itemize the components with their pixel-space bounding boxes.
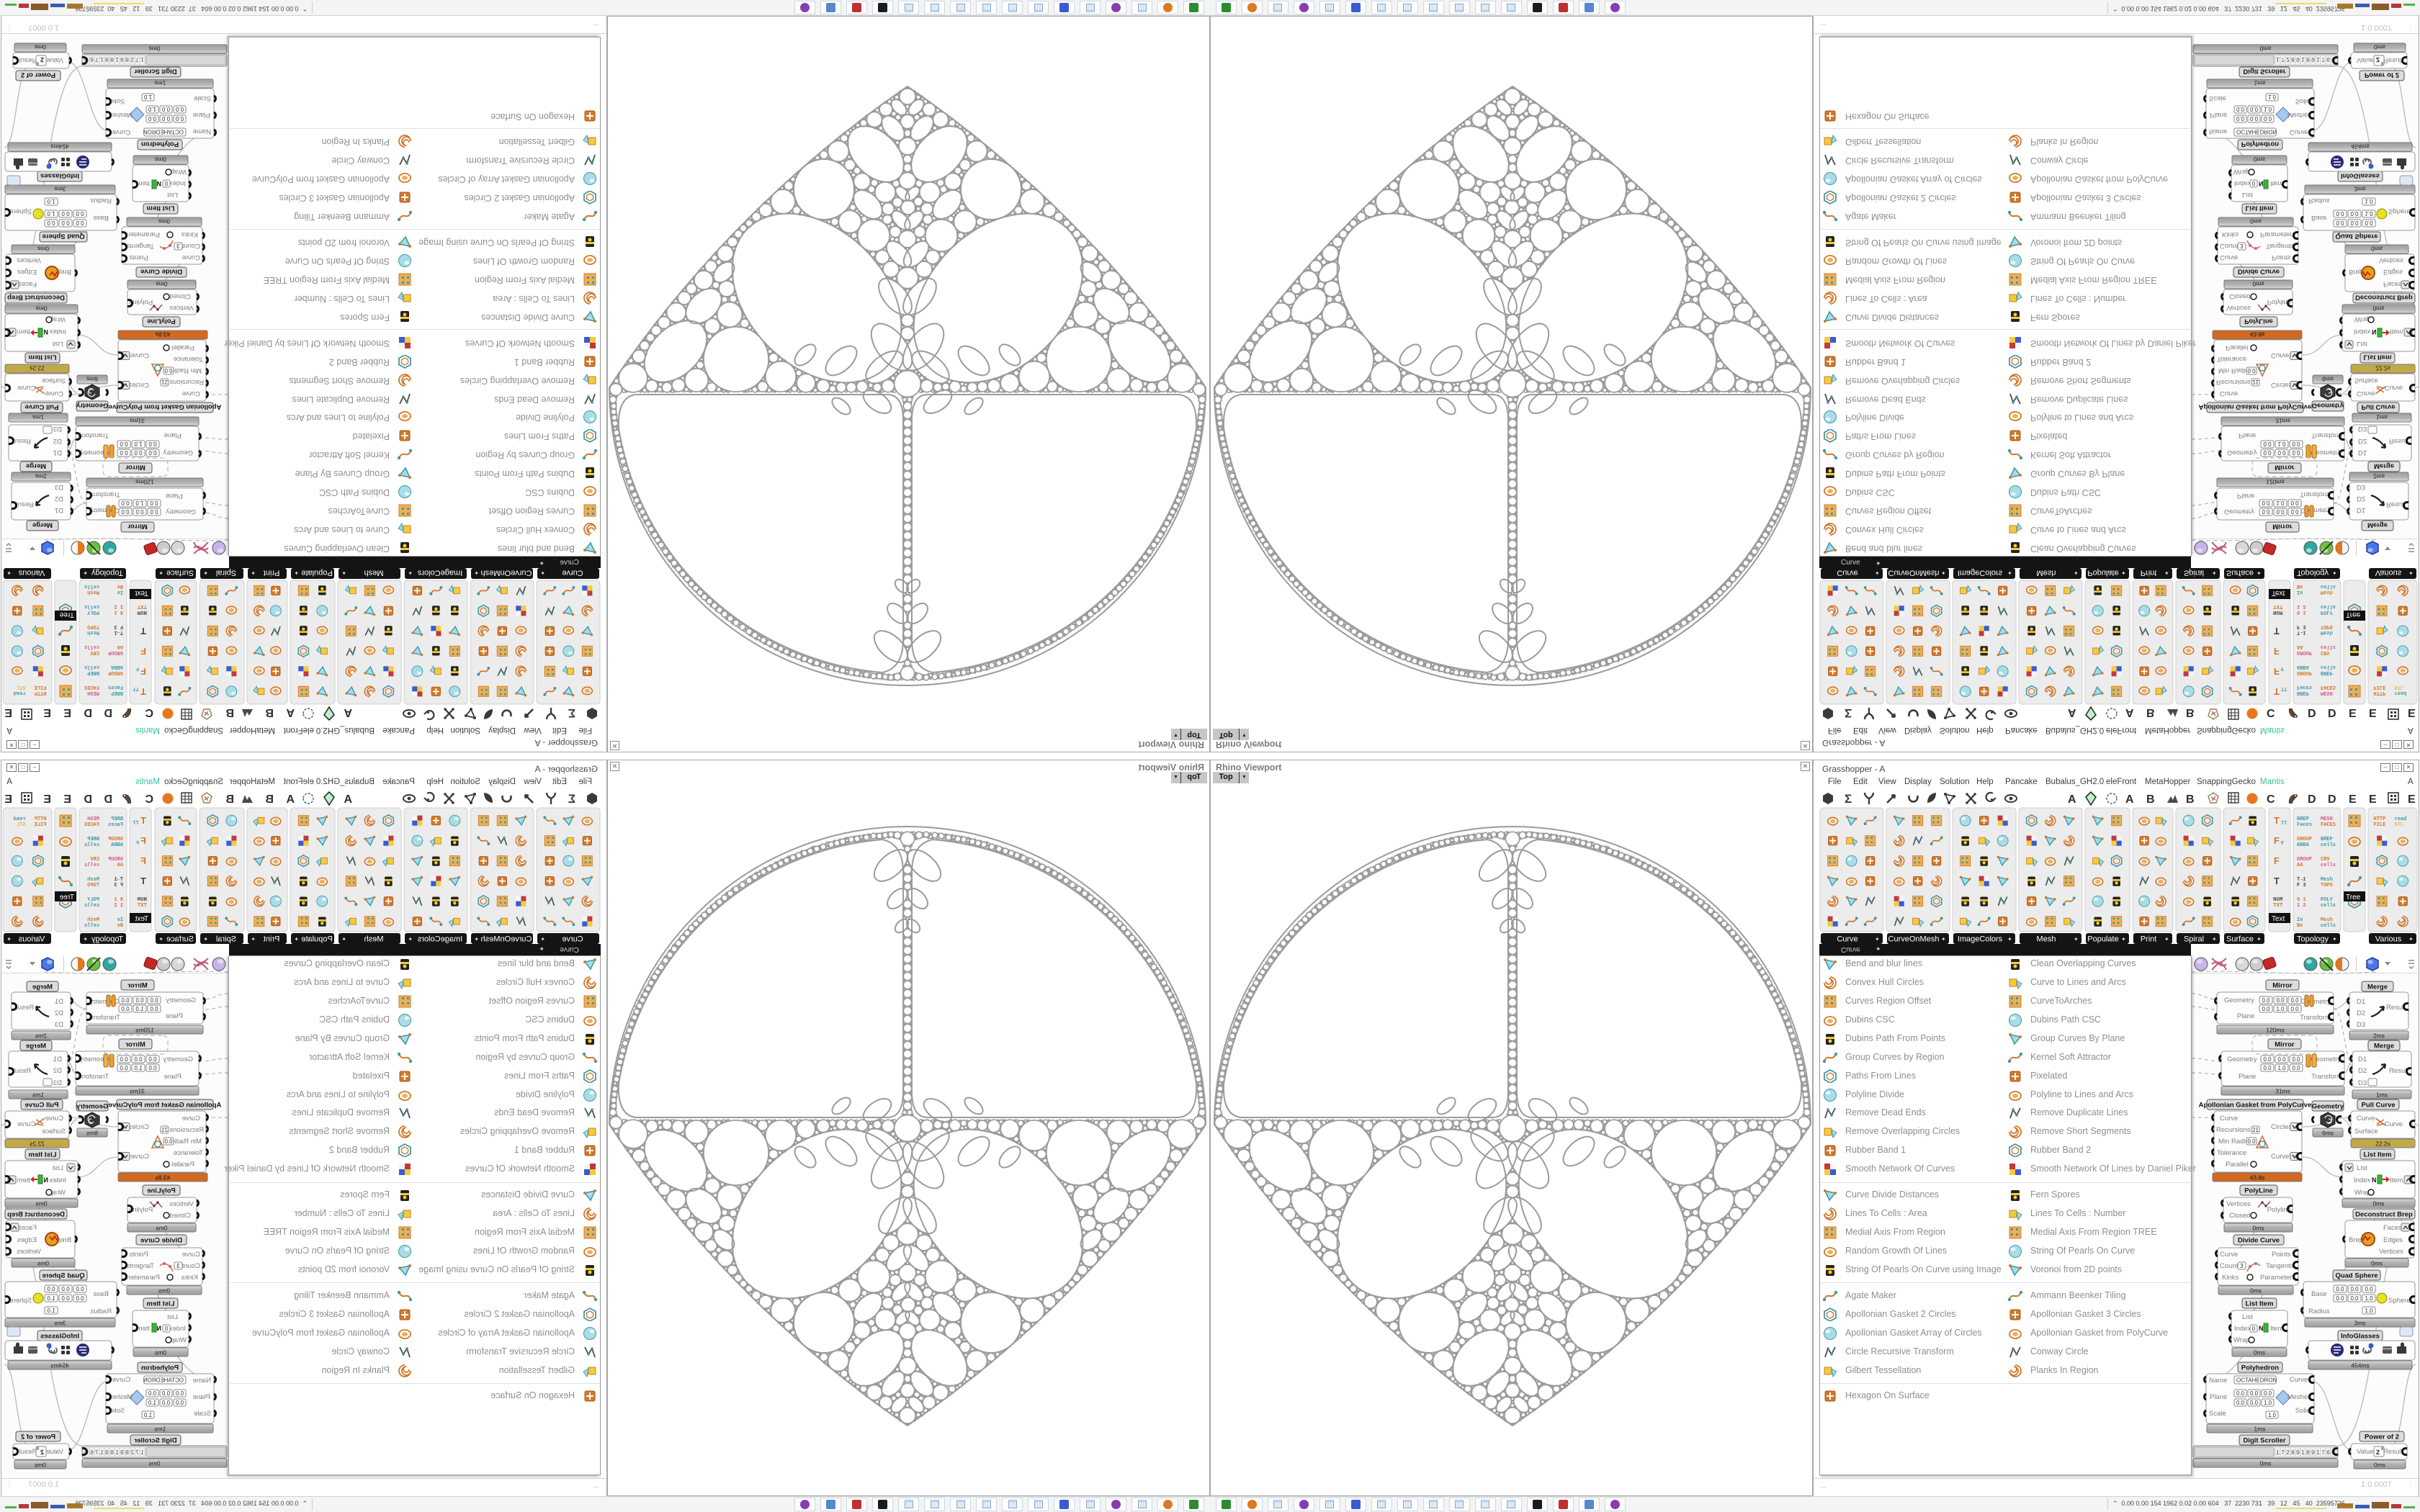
- svg-text:Sphere: Sphere: [2388, 1297, 2411, 1305]
- svg-text:Pull Curve: Pull Curve: [2362, 1102, 2396, 1110]
- svg-text:ABBA: ABBA: [2297, 842, 2310, 848]
- svg-text:✦: ✦: [2257, 936, 2262, 942]
- svg-text:FACES: FACES: [2321, 822, 2336, 828]
- svg-text:✦: ✦: [2121, 936, 2126, 942]
- svg-text:6ms: 6ms: [2322, 1130, 2334, 1137]
- svg-text:Points: Points: [2272, 1251, 2291, 1259]
- svg-text:✦: ✦: [341, 936, 346, 942]
- svg-text:0ms: 0ms: [2252, 1225, 2264, 1232]
- svg-text:1: 1: [2316, 1449, 2320, 1456]
- svg-text:Curves: Curves: [2271, 1153, 2293, 1161]
- svg-text:Surface: Surface: [2226, 935, 2254, 944]
- svg-text:0.0: 0.0: [2250, 1390, 2259, 1397]
- svg-text:454ms: 454ms: [2351, 1362, 2370, 1369]
- svg-text:0ms: 0ms: [2254, 1349, 2265, 1356]
- svg-text:E: E: [2349, 793, 2357, 806]
- svg-text:✦: ✦: [474, 936, 479, 942]
- svg-text:List: List: [2357, 1164, 2367, 1172]
- svg-text:0ms: 0ms: [2374, 1462, 2385, 1469]
- svg-text:Curve: Curve: [2357, 1115, 2375, 1122]
- svg-text:List Item: List Item: [2363, 1151, 2391, 1159]
- svg-text:F 3: F 3: [2297, 883, 2306, 888]
- svg-text:0: 0: [2252, 1326, 2256, 1332]
- svg-text:1: 1: [2301, 1449, 2305, 1456]
- svg-text:Mirror: Mirror: [2272, 982, 2293, 990]
- svg-text:Tolerance: Tolerance: [2217, 1149, 2246, 1157]
- svg-text:0.0: 0.0: [2336, 1295, 2344, 1302]
- svg-text:Polyhedron: Polyhedron: [2241, 1364, 2279, 1372]
- svg-text:0.0: 0.0: [2247, 1138, 2256, 1145]
- svg-text:✦: ✦: [2212, 936, 2217, 942]
- svg-text:Curves: Curves: [2290, 1376, 2311, 1384]
- svg-text:A: A: [344, 793, 352, 806]
- svg-text:Result: Result: [2383, 1448, 2403, 1456]
- svg-text:✦: ✦: [540, 936, 545, 942]
- svg-text:A: A: [2125, 793, 2134, 806]
- svg-text:A: A: [286, 793, 295, 806]
- svg-text:Curve: Curve: [2220, 1251, 2238, 1259]
- svg-text:CRV: CRV: [2321, 857, 2330, 863]
- svg-text:Topology: Topology: [2297, 935, 2329, 944]
- svg-text:Transform: Transform: [2311, 1073, 2342, 1081]
- svg-text:Solid: Solid: [2295, 1407, 2311, 1415]
- svg-text:0.0: 0.0: [2276, 997, 2285, 1004]
- svg-text:C: C: [145, 793, 153, 806]
- svg-text:C: C: [2267, 793, 2275, 806]
- svg-text:D: D: [2308, 793, 2316, 806]
- svg-text:B: B: [2186, 793, 2195, 806]
- svg-text:Name: Name: [2209, 1377, 2227, 1385]
- svg-text:N: N: [2259, 1325, 2264, 1332]
- svg-text:Meshes: Meshes: [2287, 1393, 2312, 1401]
- svg-text:Brep: Brep: [2349, 1236, 2363, 1244]
- svg-text:Divide Curve: Divide Curve: [2238, 1237, 2280, 1245]
- svg-text:Vertices: Vertices: [2226, 1200, 2251, 1208]
- svg-text:Σ: Σ: [1845, 792, 1852, 806]
- svg-text:1ms: 1ms: [2376, 1092, 2388, 1099]
- svg-text:22.2s: 22.2s: [2375, 1140, 2390, 1148]
- svg-text:0.0: 0.0: [2350, 1295, 2359, 1302]
- svg-text:0.0: 0.0: [2262, 1006, 2270, 1012]
- svg-text:NUM: NUM: [2273, 897, 2283, 903]
- svg-text:Parallel: Parallel: [2226, 1161, 2249, 1169]
- svg-text:D: D: [2328, 793, 2336, 806]
- svg-text:Curve: Curve: [2385, 1120, 2403, 1128]
- svg-text:120ms: 120ms: [2266, 1027, 2285, 1034]
- svg-text:B: B: [225, 793, 234, 806]
- svg-text:✦: ✦: [2007, 936, 2012, 942]
- svg-text:1.0: 1.0: [2365, 1295, 2373, 1302]
- svg-text:6: 6: [2326, 1449, 2330, 1456]
- svg-text:E: E: [2408, 793, 2416, 806]
- svg-text:✦: ✦: [408, 936, 413, 942]
- svg-text:GROUP: GROUP: [2297, 837, 2312, 842]
- svg-text:Count: Count: [2220, 1262, 2238, 1270]
- svg-text:Mesh: Mesh: [2037, 935, 2056, 944]
- svg-text:8: 8: [2291, 1449, 2295, 1456]
- svg-text:0.0: 0.0: [2290, 1006, 2299, 1012]
- svg-text:Vertices: Vertices: [2379, 1248, 2403, 1256]
- svg-text:cells: cells: [2321, 923, 2336, 929]
- svg-text:Closed: Closed: [2229, 1212, 2251, 1220]
- svg-text:43.8s: 43.8s: [2250, 1174, 2265, 1182]
- svg-text:F: F: [2274, 855, 2280, 866]
- svg-text:T: T: [2274, 876, 2280, 886]
- svg-text:Base: Base: [2311, 1290, 2327, 1298]
- svg-text:0ms: 0ms: [2259, 1460, 2271, 1467]
- svg-text:E: E: [2369, 793, 2377, 806]
- svg-text:BREP: BREP: [2321, 837, 2333, 842]
- svg-text:Tangents: Tangents: [2266, 1262, 2294, 1270]
- svg-text:31ms: 31ms: [2275, 1088, 2290, 1095]
- svg-text:B: B: [265, 793, 274, 806]
- svg-text:Transform: Transform: [2300, 1014, 2331, 1022]
- svg-text:0.0: 0.0: [2336, 1286, 2344, 1292]
- svg-text:Populate: Populate: [2087, 935, 2118, 944]
- svg-text:3: 3: [2240, 1263, 2244, 1269]
- svg-text:T→1: T→1: [2297, 877, 2306, 883]
- svg-text:0ms: 0ms: [2250, 1287, 2262, 1295]
- svg-text:✦: ✦: [2332, 936, 2337, 942]
- svg-text:D1: D1: [2357, 998, 2365, 1006]
- svg-text:0.0: 0.0: [2236, 1400, 2245, 1406]
- svg-text:Mesh: Mesh: [2321, 877, 2333, 883]
- svg-text:E: E: [43, 793, 51, 806]
- svg-text:Edges: Edges: [2383, 1236, 2403, 1244]
- svg-text:1.0: 1.0: [2276, 1006, 2285, 1012]
- svg-text:1 2: 1 2: [2297, 903, 2306, 909]
- svg-text:8: 8: [2306, 1449, 2310, 1456]
- svg-text:0.0: 0.0: [2263, 1065, 2272, 1071]
- svg-text:Various: Various: [2375, 935, 2402, 944]
- svg-text:Text: Text: [2272, 915, 2285, 923]
- svg-text:AA: AA: [2297, 863, 2303, 868]
- svg-text:0.0: 0.0: [2250, 1400, 2259, 1406]
- svg-text:2: 2: [2286, 1449, 2290, 1456]
- svg-text:7: 7: [2321, 1449, 2325, 1456]
- svg-text:HTTP: HTTP: [2374, 816, 2386, 822]
- svg-text:77: 77: [2281, 821, 2287, 827]
- svg-text:Index: Index: [2354, 1176, 2370, 1184]
- svg-text:TOPO: TOPO: [2321, 883, 2333, 888]
- svg-text:GROUP: GROUP: [2297, 857, 2312, 863]
- svg-text:Mesh: Mesh: [364, 935, 384, 944]
- svg-text:Spiral: Spiral: [2184, 935, 2204, 944]
- svg-text:Geometry: Geometry: [2312, 1103, 2344, 1111]
- svg-text:Scale: Scale: [2209, 1410, 2226, 1418]
- svg-text:A: A: [2068, 793, 2076, 806]
- svg-text:0 1: 0 1: [2297, 897, 2306, 903]
- svg-text:CurveOnMesh: CurveOnMesh: [481, 935, 532, 944]
- svg-text:3ms: 3ms: [2354, 1320, 2365, 1327]
- svg-text:read: read: [2395, 816, 2407, 822]
- svg-text:POLY: POLY: [2321, 897, 2334, 903]
- svg-text:Geometry: Geometry: [2227, 1056, 2257, 1063]
- svg-text:T: T: [2274, 815, 2280, 826]
- svg-text:OCTAHEDRON: OCTAHEDRON: [2236, 1377, 2277, 1384]
- svg-text:7: 7: [2281, 1449, 2285, 1456]
- svg-text:9: 9: [2311, 1449, 2315, 1456]
- svg-text:0.0: 0.0: [2264, 1390, 2272, 1397]
- svg-text:Value: Value: [2357, 1448, 2374, 1456]
- svg-text:21: 21: [2252, 1127, 2259, 1133]
- svg-text:cells: cells: [2321, 863, 2336, 868]
- svg-text:Circles: Circles: [2271, 1123, 2292, 1131]
- svg-text:2: 2: [2376, 1449, 2380, 1456]
- svg-text:B: B: [2146, 793, 2155, 806]
- svg-text:0.0: 0.0: [2292, 1056, 2300, 1063]
- svg-text:Recursions: Recursions: [2216, 1126, 2251, 1134]
- svg-text:✦: ✦: [1941, 936, 1946, 942]
- svg-text:1.0: 1.0: [2268, 1412, 2277, 1418]
- svg-text:N: N: [2372, 1176, 2377, 1184]
- svg-text:FILE: FILE: [2374, 822, 2386, 828]
- svg-text:Curve: Curve: [2220, 1115, 2238, 1122]
- svg-text:Faces: Faces: [2383, 1224, 2402, 1232]
- svg-text:Plane: Plane: [2237, 1012, 2254, 1020]
- svg-text:Quad Sphere: Quad Sphere: [2335, 1272, 2378, 1280]
- svg-text:✦: ✦: [2164, 936, 2169, 942]
- svg-text:Merge: Merge: [2374, 1043, 2394, 1050]
- svg-text:InfoGlasses: InfoGlasses: [2341, 1333, 2380, 1341]
- svg-text:1: 1: [2276, 1449, 2280, 1456]
- svg-text:Σ: Σ: [568, 792, 575, 806]
- svg-text:Item: Item: [2390, 1176, 2403, 1184]
- svg-text:0.0: 0.0: [2262, 997, 2270, 1004]
- svg-text:Faces: Faces: [2297, 822, 2312, 828]
- svg-text:Be: Be: [2297, 923, 2303, 929]
- svg-text:0.0: 0.0: [2365, 1286, 2373, 1292]
- svg-text:CurveOnMesh: CurveOnMesh: [1888, 935, 1940, 944]
- svg-text:Ie: Ie: [2297, 917, 2303, 923]
- svg-text:1.0: 1.0: [2277, 1065, 2286, 1071]
- svg-text:Deconstruct Brep: Deconstruct Brep: [2355, 1211, 2413, 1219]
- svg-text:1.0: 1.0: [2365, 1308, 2373, 1314]
- svg-text:✦: ✦: [2408, 936, 2414, 942]
- svg-text:D2: D2: [2358, 1067, 2367, 1075]
- svg-text:F: F: [2274, 835, 2280, 846]
- svg-text:D3: D3: [2357, 1021, 2365, 1029]
- svg-text:List Item: List Item: [2245, 1300, 2273, 1308]
- svg-text:BREP: BREP: [2297, 816, 2309, 822]
- svg-text:Surface: Surface: [2354, 1128, 2378, 1135]
- svg-text:D1: D1: [2358, 1056, 2367, 1063]
- svg-text:9: 9: [2296, 1449, 2300, 1456]
- svg-text:2ms: 2ms: [2373, 1032, 2385, 1040]
- svg-text:Index: Index: [2234, 1325, 2251, 1333]
- svg-text:0ms: 0ms: [2372, 1200, 2384, 1207]
- svg-text:0.0: 0.0: [2277, 1056, 2286, 1063]
- svg-text:Print: Print: [2141, 935, 2157, 944]
- svg-text:Power of 2: Power of 2: [2365, 1434, 2399, 1441]
- svg-text:Plane: Plane: [2238, 1073, 2256, 1081]
- svg-text:ImageColors: ImageColors: [1958, 935, 2003, 944]
- svg-text:E: E: [63, 793, 71, 806]
- svg-text:Tree: Tree: [2346, 894, 2361, 901]
- svg-text:Mesh: Mesh: [2321, 917, 2333, 923]
- svg-text:List: List: [2242, 1313, 2253, 1321]
- svg-text:1.0: 1.0: [2264, 1400, 2272, 1406]
- svg-text:cells: cells: [2321, 903, 2336, 909]
- svg-text:Wrap: Wrap: [2233, 1336, 2250, 1344]
- svg-text:0.0: 0.0: [2292, 1065, 2300, 1071]
- svg-text:Plane: Plane: [2210, 1393, 2227, 1401]
- svg-text:Item: Item: [2270, 1325, 2284, 1333]
- svg-text:0ms: 0ms: [2371, 1260, 2383, 1267]
- svg-text:Curve: Curve: [562, 935, 583, 944]
- svg-text:ImageColors: ImageColors: [417, 935, 462, 944]
- svg-text:Digit Scroller: Digit Scroller: [2243, 1437, 2285, 1445]
- svg-text:0.0: 0.0: [2236, 1390, 2245, 1397]
- svg-text:0.0: 0.0: [2263, 1056, 2272, 1063]
- svg-text:1ms: 1ms: [2254, 1426, 2265, 1433]
- svg-text:✦: ✦: [1875, 936, 1880, 942]
- svg-text:STL: STL: [2395, 822, 2404, 828]
- svg-text:Apollonian Gasket from PolyCur: Apollonian Gasket from PolyCurve: [2199, 1102, 2312, 1110]
- svg-text:D3: D3: [2358, 1079, 2367, 1087]
- svg-text:F: F: [2281, 841, 2284, 847]
- svg-text:D: D: [104, 793, 112, 806]
- svg-text:E: E: [4, 793, 12, 806]
- svg-text:cells: cells: [2321, 842, 2336, 848]
- svg-text:TXT: TXT: [2273, 903, 2283, 909]
- svg-text:✦: ✦: [2074, 936, 2079, 942]
- svg-text:0.0: 0.0: [2350, 1286, 2359, 1292]
- svg-text:Geometry: Geometry: [2224, 996, 2254, 1004]
- svg-text:D: D: [84, 793, 92, 806]
- svg-text:PolyLine: PolyLine: [2244, 1187, 2273, 1195]
- svg-text:Parameters: Parameters: [2260, 1274, 2295, 1282]
- svg-text:MESH: MESH: [2321, 816, 2333, 822]
- svg-text:Mirror: Mirror: [2275, 1041, 2295, 1049]
- svg-text:Kinks: Kinks: [2222, 1274, 2238, 1282]
- svg-text:0.0: 0.0: [2290, 997, 2299, 1004]
- svg-text:Merge: Merge: [2367, 984, 2388, 991]
- svg-text:D2: D2: [2357, 1009, 2365, 1017]
- svg-text:Radius: Radius: [2308, 1308, 2330, 1315]
- svg-text:Curve: Curve: [1837, 935, 1857, 944]
